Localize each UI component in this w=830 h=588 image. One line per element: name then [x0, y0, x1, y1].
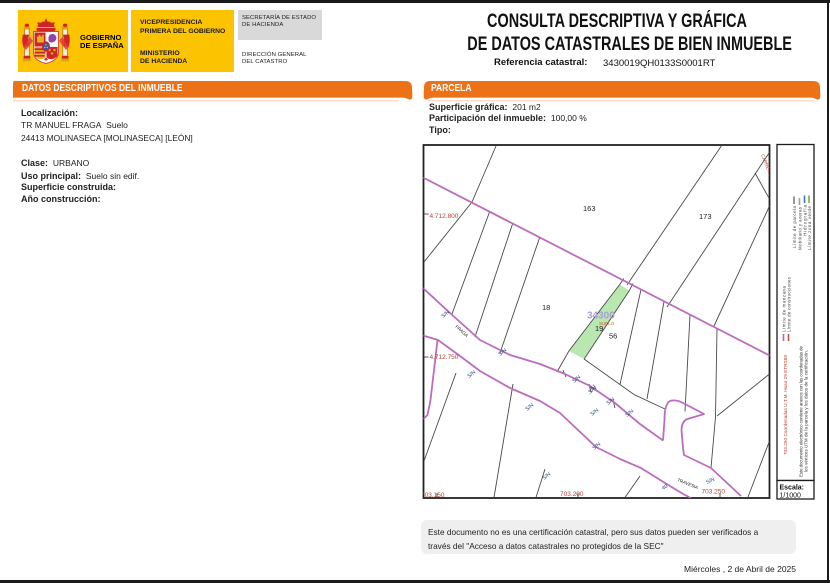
svg-text:703.200: 703.200 — [560, 491, 584, 498]
svg-text:4.712.750: 4.712.750 — [430, 354, 459, 361]
svg-text:18: 18 — [542, 303, 550, 312]
svg-text:703.250 Coordenadas U.T.M. Hus: 703.250 Coordenadas U.T.M. Huso 29 ETRS8… — [783, 355, 788, 455]
svg-text:Escala:: Escala: — [780, 485, 805, 492]
svg-text:703.150: 703.150 — [422, 492, 445, 499]
svg-text:4.712.800: 4.712.800 — [430, 213, 459, 220]
svg-text:1/1000: 1/1000 — [780, 493, 802, 500]
svg-text:los vértices UTM de la parcela: los vértices UTM de la parcela y los dat… — [804, 350, 809, 472]
svg-text:703.250: 703.250 — [702, 489, 726, 496]
svg-text:SUELO: SUELO — [599, 321, 615, 326]
svg-text:34300: 34300 — [587, 311, 615, 322]
svg-text:173: 173 — [699, 212, 712, 221]
svg-text:Límite de construcciones: Límite de construcciones — [787, 276, 792, 332]
svg-text:Límite de parcela: Límite de parcela — [792, 205, 797, 248]
svg-text:56: 56 — [609, 332, 617, 341]
svg-text:Límite zona verde: Límite zona verde — [807, 205, 812, 250]
svg-text:163: 163 — [583, 204, 596, 213]
